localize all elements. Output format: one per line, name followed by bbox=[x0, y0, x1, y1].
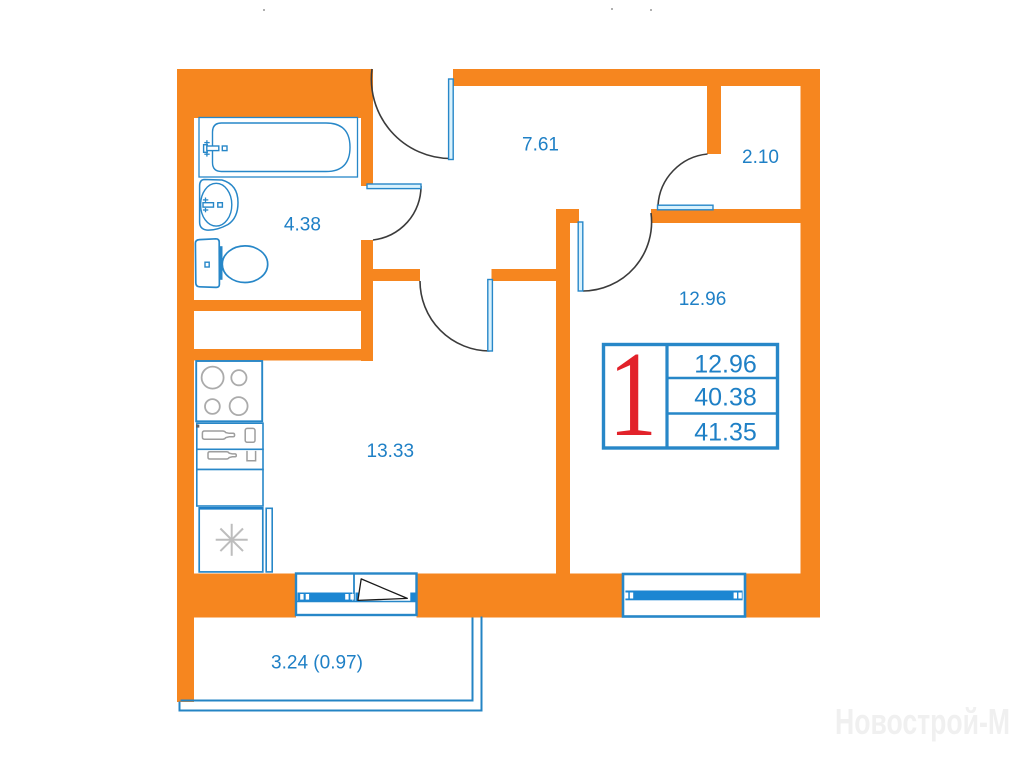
svg-text:1: 1 bbox=[608, 327, 657, 462]
svg-text:40.38: 40.38 bbox=[694, 384, 757, 412]
svg-text:2.10: 2.10 bbox=[742, 147, 779, 168]
svg-text:3.24 (0.97): 3.24 (0.97) bbox=[271, 653, 363, 674]
svg-text:41.35: 41.35 bbox=[694, 419, 757, 447]
svg-text:13.33: 13.33 bbox=[367, 441, 415, 462]
svg-text:12.96: 12.96 bbox=[679, 289, 727, 310]
svg-text:12.96: 12.96 bbox=[694, 351, 757, 379]
svg-text:Новострой-М: Новострой-М bbox=[835, 701, 1010, 742]
svg-text:7.61: 7.61 bbox=[522, 134, 559, 155]
svg-text:4.38: 4.38 bbox=[284, 215, 321, 236]
